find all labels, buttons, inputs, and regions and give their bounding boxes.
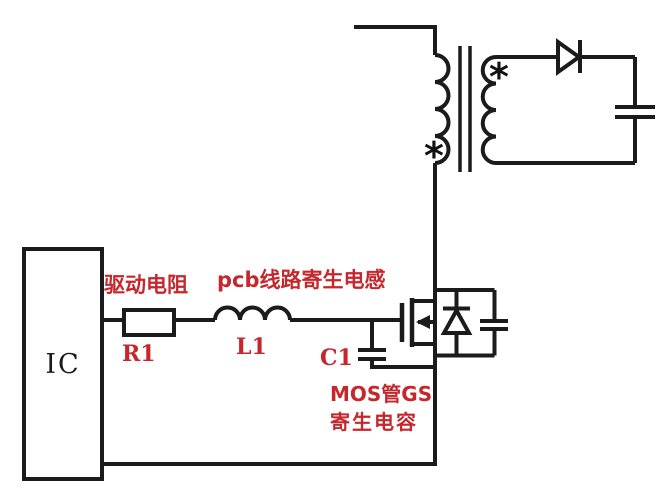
mosfet [402, 298, 437, 347]
resistor-r1 [124, 310, 174, 335]
body-diode-icon [443, 290, 470, 356]
primary-dot-marker: * [424, 137, 444, 175]
secondary-dot-marker: * [489, 58, 509, 96]
label-r1: R1 [122, 343, 156, 365]
secondary-loop-wires [496, 57, 635, 163]
ic-label: IC [24, 351, 102, 378]
inductor-l1 [215, 307, 290, 320]
label-l1: L1 [236, 336, 267, 358]
label-pcb-trace-inductance: pcb线路寄生电感 [217, 269, 386, 292]
top-rail-wire [354, 27, 435, 55]
label-parasitic-capacitance: 寄生电容 [330, 411, 418, 433]
output-capacitor-icon [615, 107, 655, 117]
mosfet-parallel-network [435, 290, 508, 356]
label-c1: C1 [320, 347, 353, 369]
circuit-schematic: IC 驱动电阻 pcb线路寄生电感 R1 L1 C1 MOS管GS 寄生电容 *… [0, 0, 663, 497]
transformer [435, 46, 496, 172]
label-mos-gs: MOS管GS [330, 383, 432, 405]
mosfet-body-arrow-icon [416, 315, 430, 329]
label-drive-resistor: 驱动电阻 [104, 274, 188, 297]
output-diode-icon [558, 40, 580, 73]
ds-capacitor-icon [480, 290, 508, 356]
